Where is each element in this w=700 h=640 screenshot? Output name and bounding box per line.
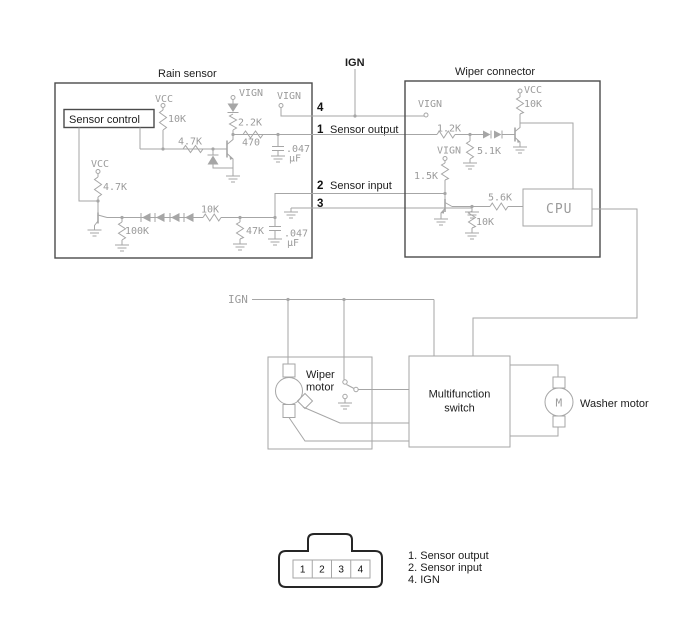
ground-icon [284,208,298,218]
ign-top-label: IGN [345,57,365,69]
pin2-number: 2 [317,180,323,192]
switch-contact-icon [343,380,347,384]
junction-dot [443,192,446,195]
vcc-terminal-icon [96,170,100,174]
wire [98,215,107,218]
ground-icon [434,219,448,225]
pin4-wire [281,108,424,117]
switch-contact-icon [343,394,347,398]
motor-section: IGN Wiper motor Multifunction switch [228,293,649,449]
resistor-10k-base-label: 10K [476,217,494,228]
connector-pin-3: 3 [338,565,344,576]
resistor-100k-label: 100K [125,226,149,237]
resistor-10k-base-icon [469,211,476,228]
resistor-5-6k-icon [490,203,508,210]
resistor-5-6k-label: 5.6K [488,193,512,204]
resistor-10k-series-label: 10K [201,205,219,216]
series-diodes-icon [483,131,515,139]
resistor-47k-icon [237,222,244,239]
multifunction-switch-box [409,356,510,447]
wire [289,418,409,442]
cpu-output-wire [473,209,637,356]
legend-line-2: 2. Sensor input [408,562,482,574]
resistor-10k-pullup-icon [517,97,524,114]
connector-pinout: 1 2 3 4 1. Sensor output 2. Sensor input… [279,534,489,587]
vign-terminal-icon [424,113,428,117]
motor-terminal [553,416,565,427]
cpu-label: CPU [546,202,572,217]
wire [510,427,558,436]
vign-terminal-icon [279,104,283,108]
vcc-label: VCC [155,94,173,105]
resistor-1-5k-icon [442,163,449,180]
ground-icon [88,230,102,236]
vcc-label: VCC [524,85,542,96]
pin2-name: Sensor input [330,180,392,192]
resistor-10k-pullup-label: 10K [524,99,542,110]
pin4-number: 4 [317,102,324,114]
motor-terminal [283,405,295,418]
connector-pin-4: 4 [358,565,364,576]
diode-icon [208,156,219,165]
ground-icon [463,159,477,169]
wiper-motor-label: motor [306,382,334,394]
motor-terminal [553,377,565,388]
resistor-10k-label: 10K [168,114,186,125]
resistor-4-7k-label: 4.7K [178,137,202,148]
legend-line-3: 4. IGN [408,574,440,586]
circuit-schematic: Rain sensor Sensor control VCC 10K 4.7K [0,0,700,640]
vign-label: VIGN [239,88,263,99]
emitter-arrow-icon [230,156,234,160]
vign-terminal-icon [231,96,235,100]
motor-terminal [283,364,295,377]
washer-motor-label: Washer motor [580,398,649,410]
wire [445,203,452,207]
wire [213,165,233,169]
junction-dot [96,199,99,202]
vign-mid-label: VIGN [437,146,461,157]
rain-sensor-title: Rain sensor [158,68,217,80]
ground-icon [338,399,352,410]
switch-lever-icon [347,385,355,389]
ign-mid-label: IGN [228,293,248,306]
vign-pin4-label: VIGN [418,99,442,110]
ground-icon [271,151,285,163]
ground-icon [465,228,479,239]
ground-icon [115,240,129,251]
vcc-left-label: VCC [91,159,109,170]
multifunction-switch-label: switch [444,403,475,415]
wire [510,365,558,377]
resistor-47k-label: 47K [246,226,264,237]
wiring-diagram-page: Rain sensor Sensor control VCC 10K 4.7K [0,0,700,640]
multifunction-switch-label: Multifunction [429,389,491,401]
cap1-unit-label: µF [289,154,301,165]
resistor-4-7k-left-label: 4.7K [103,182,127,193]
ground-icon [268,231,282,246]
wiper-motor-label: Wiper [306,369,335,381]
ground-icon [226,168,240,182]
wire [227,135,233,145]
wire [227,154,233,169]
motor-m-symbol: M [556,397,563,410]
legend-line-1: 1. Sensor output [408,550,489,562]
resistor-5-1k-label: 5.1K [477,146,501,157]
wire [303,407,409,423]
resistor-1-5k-label: 1.5K [414,171,438,182]
wire [95,221,99,230]
rain-sensor-section: Rain sensor Sensor control VCC 10K 4.7K [55,68,424,258]
vcc-terminal-icon [518,89,522,93]
cap2-unit-label: µF [287,238,299,249]
resistor-2-2k-icon [230,114,237,130]
ground-icon [233,239,247,250]
resistor-4-7k-left-icon [95,177,102,197]
connector-pin-1: 1 [300,565,306,576]
switch-contact-icon [354,387,358,391]
junction-dot [353,114,356,117]
ground-icon [513,147,527,153]
diode-icon [228,104,239,113]
junction-dot [161,147,164,150]
sensor-control-label: Sensor control [69,114,140,126]
wiper-connector-section: Wiper connector VIGN VCC 10K 1.2K 5.1K [405,66,637,356]
vign-pin4-label: VIGN [277,91,301,102]
motor-brush-icon [298,394,313,409]
resistor-2-2k-label: 2.2K [238,118,262,129]
wiper-connector-title: Wiper connector [455,66,535,78]
collector-to-cpu-wire [520,123,573,189]
sensor-input-wire [275,194,445,218]
connector-pin-2: 2 [319,565,325,576]
resistor-10k-icon [160,110,167,130]
resistor-470-label: 470 [242,138,260,149]
vign-terminal-icon [443,157,447,161]
resistor-5-1k-icon [467,141,474,159]
